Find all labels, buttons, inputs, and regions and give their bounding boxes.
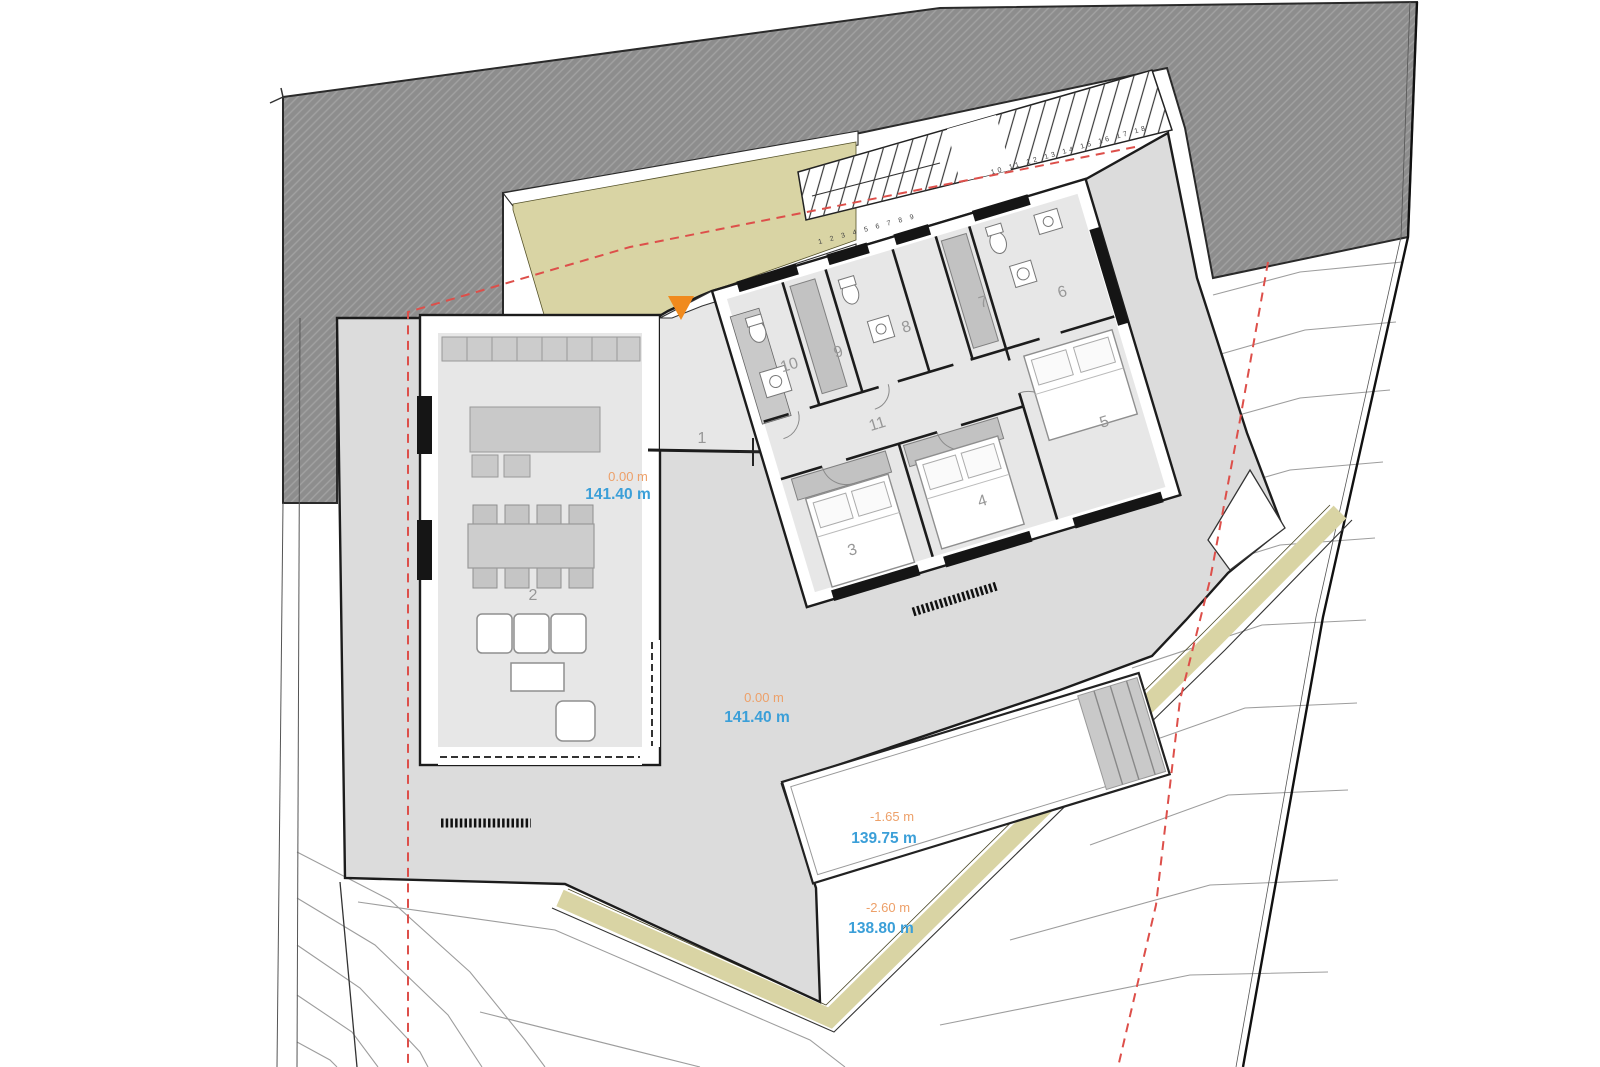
svg-text:141.40 m: 141.40 m [724,709,790,726]
boundary-notch [270,88,283,103]
svg-text:-2.60 m: -2.60 m [866,900,910,915]
elevation-pool-deck: -2.60 m 138.80 m [848,900,914,937]
svg-text:141.40 m: 141.40 m [585,486,651,503]
floor-plan-page: 1 2 3 4 5 6 7 8 9 10 11 12 13 14 15 16 1… [0,0,1600,1067]
room-label-1: 1 [698,430,707,447]
living-wing [417,315,660,765]
room-label-2: 2 [529,587,538,604]
svg-text:138.80 m: 138.80 m [848,920,914,937]
svg-text:0.00 m: 0.00 m [744,690,784,705]
floor-plan-drawing: 1 2 3 4 5 6 7 8 9 10 11 12 13 14 15 16 1… [0,0,1600,1067]
svg-text:0.00 m: 0.00 m [608,469,648,484]
armchair [556,701,595,741]
coffee-table [511,663,564,691]
kitchen-counter [442,337,640,361]
svg-text:139.75 m: 139.75 m [851,830,917,847]
svg-text:-1.65 m: -1.65 m [870,809,914,824]
